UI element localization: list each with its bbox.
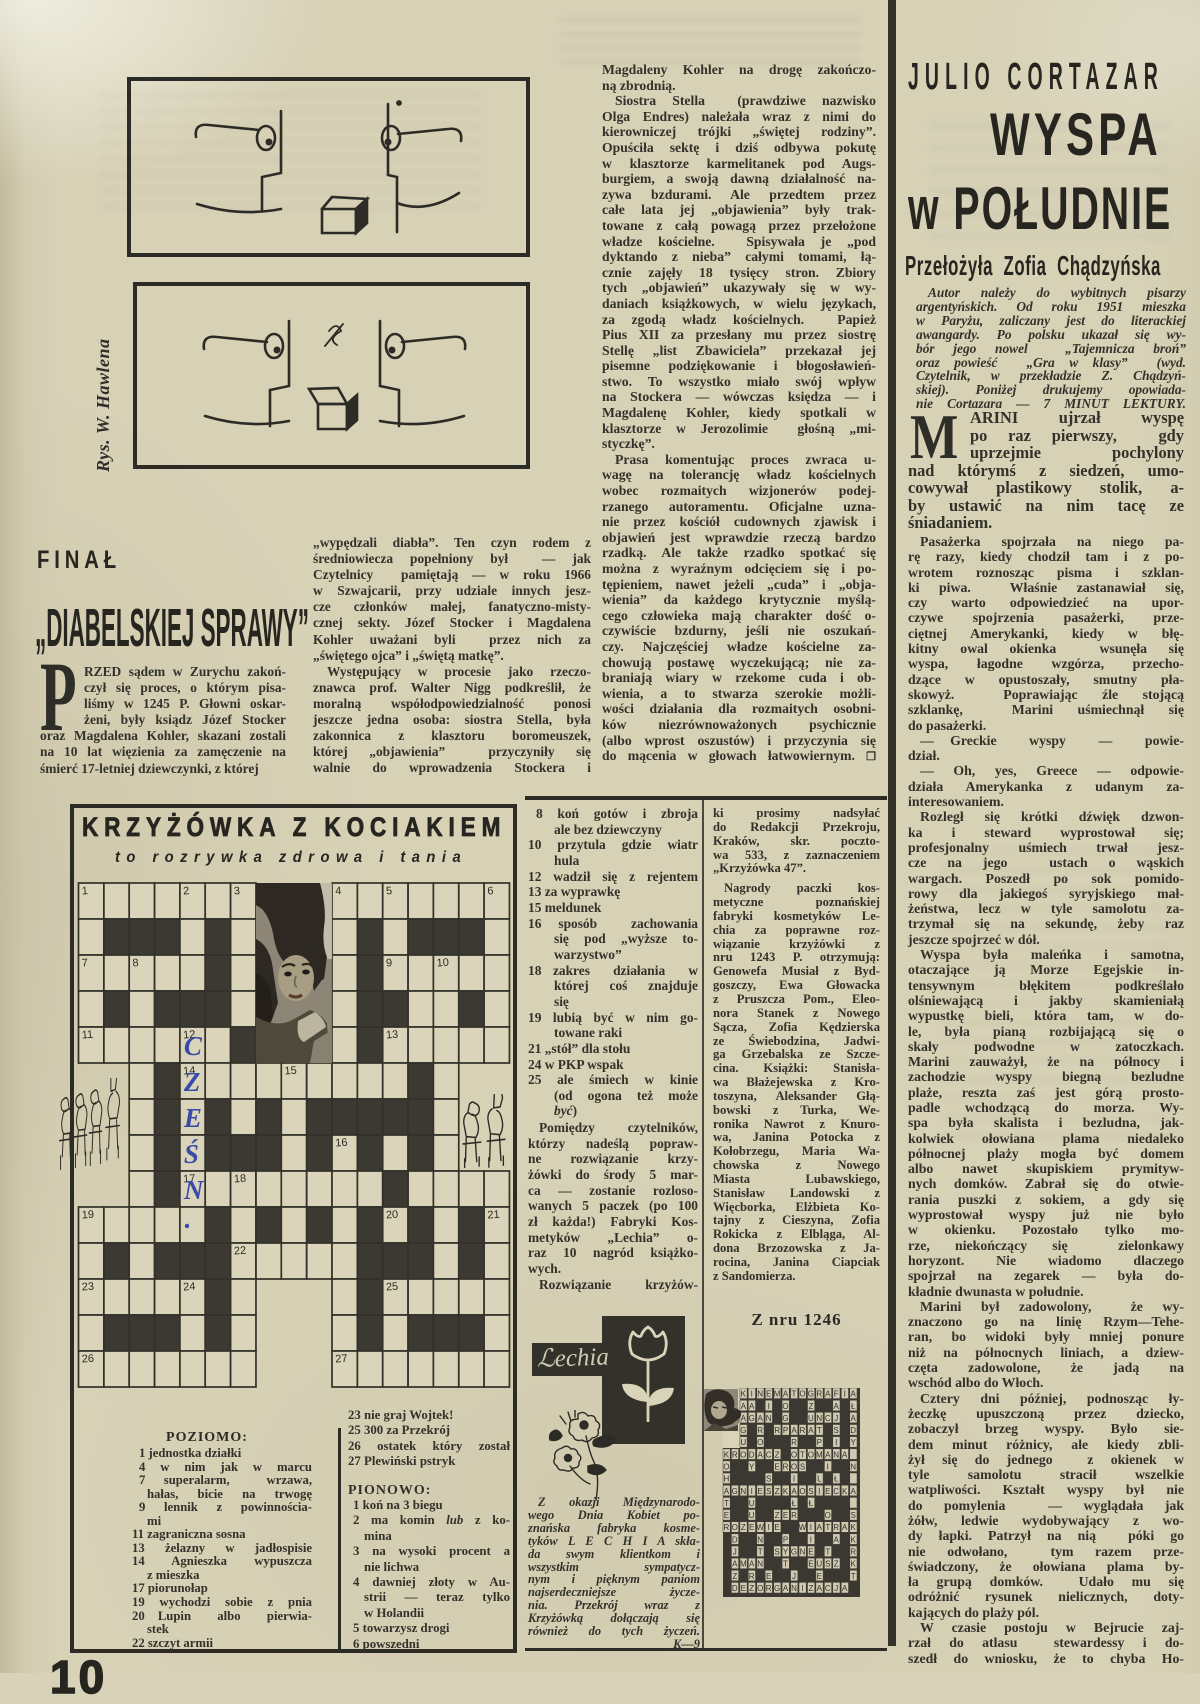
svg-text:G: G xyxy=(782,1414,788,1423)
svg-text:A: A xyxy=(808,1426,814,1435)
svg-text:A: A xyxy=(783,1584,789,1593)
svg-text:20: 20 xyxy=(386,1209,399,1222)
svg-text:I: I xyxy=(751,1390,753,1399)
svg-text:1: 1 xyxy=(81,885,88,897)
svg-text:Z: Z xyxy=(732,1572,737,1581)
svg-text:A: A xyxy=(732,1560,738,1569)
svg-text:A: A xyxy=(851,1390,857,1399)
svg-text:Ł: Ł xyxy=(851,1402,856,1411)
svg-text:Ł: Ł xyxy=(809,1499,814,1508)
svg-text:P: P xyxy=(783,1535,788,1544)
svg-text:T: T xyxy=(817,1426,822,1435)
svg-text:27: 27 xyxy=(335,1353,348,1366)
svg-text:K: K xyxy=(724,1450,730,1459)
svg-text:18: 18 xyxy=(233,1173,246,1186)
svg-text:N: N xyxy=(833,1450,839,1459)
svg-text:S: S xyxy=(808,1487,813,1496)
svg-text:W: W xyxy=(799,1523,807,1532)
svg-text:Y: Y xyxy=(783,1548,789,1557)
svg-text:ℒechia: ℒechia xyxy=(536,1343,609,1373)
svg-text:5: 5 xyxy=(386,885,393,897)
svg-text:N: N xyxy=(766,1414,772,1423)
svg-text:Y: Y xyxy=(749,1463,755,1472)
svg-text:A: A xyxy=(825,1390,831,1399)
svg-text:T: T xyxy=(758,1548,763,1557)
svg-text:L: L xyxy=(817,1475,822,1484)
svg-text:R: R xyxy=(749,1572,755,1581)
svg-text:E: E xyxy=(766,1390,771,1399)
svg-text:E: E xyxy=(724,1511,729,1520)
svg-text:4: 4 xyxy=(335,885,342,897)
svg-text:A: A xyxy=(851,1414,857,1423)
svg-text:25: 25 xyxy=(386,1281,399,1294)
svg-text:R: R xyxy=(791,1511,797,1520)
svg-text:C: C xyxy=(825,1584,831,1593)
svg-text:S: S xyxy=(774,1548,779,1557)
svg-text:O: O xyxy=(808,1450,814,1459)
svg-text:P: P xyxy=(817,1438,822,1447)
svg-text:3: 3 xyxy=(233,885,240,897)
svg-text:R: R xyxy=(850,1548,856,1557)
svg-text:I: I xyxy=(810,1523,812,1532)
svg-text:Z: Z xyxy=(834,1560,839,1569)
svg-text:E: E xyxy=(758,1487,763,1496)
svg-text:J: J xyxy=(733,1548,737,1557)
svg-text:19: 19 xyxy=(81,1209,94,1222)
svg-text:U: U xyxy=(749,1511,755,1520)
svg-text:D: D xyxy=(732,1584,738,1593)
svg-text:R: R xyxy=(774,1426,780,1435)
svg-text:R: R xyxy=(791,1438,797,1447)
svg-text:Ś: Ś xyxy=(184,1139,199,1169)
svg-text:I: I xyxy=(844,1390,846,1399)
svg-text:Z: Z xyxy=(183,1067,201,1097)
svg-text:J: J xyxy=(792,1572,796,1581)
svg-text:S: S xyxy=(766,1487,771,1496)
svg-text:E: E xyxy=(766,1572,771,1581)
svg-text:E: E xyxy=(808,1548,813,1557)
svg-text:T: T xyxy=(783,1560,788,1569)
svg-text:A: A xyxy=(817,1584,823,1593)
svg-text:E: E xyxy=(783,1511,788,1520)
svg-text:M: M xyxy=(740,1560,747,1569)
svg-text:G: G xyxy=(774,1584,780,1593)
svg-text:A: A xyxy=(842,1523,848,1532)
svg-text:O: O xyxy=(740,1450,746,1459)
svg-text:C: C xyxy=(825,1414,831,1423)
svg-text:E: E xyxy=(741,1584,746,1593)
svg-text:J: J xyxy=(834,1584,838,1593)
svg-text:U: U xyxy=(816,1560,822,1569)
svg-text:I: I xyxy=(835,1438,837,1447)
svg-text:Z: Z xyxy=(775,1450,780,1459)
svg-text:Ł: Ł xyxy=(792,1499,797,1508)
svg-text:S: S xyxy=(766,1475,771,1484)
svg-text:Z: Z xyxy=(808,1584,813,1593)
svg-text:E: E xyxy=(183,1103,202,1133)
svg-text:A: A xyxy=(758,1450,764,1459)
svg-text:A: A xyxy=(842,1584,848,1593)
svg-text:R: R xyxy=(783,1463,789,1472)
svg-text:T: T xyxy=(800,1450,805,1459)
svg-text:A: A xyxy=(791,1487,797,1496)
svg-text:26: 26 xyxy=(81,1353,94,1366)
svg-text:I: I xyxy=(768,1523,770,1532)
svg-text:K: K xyxy=(851,1523,857,1532)
svg-text:A: A xyxy=(834,1402,840,1411)
svg-text:T: T xyxy=(825,1523,830,1532)
svg-text:E: E xyxy=(808,1560,813,1569)
svg-text:G: G xyxy=(740,1426,746,1435)
svg-text:E: E xyxy=(817,1572,822,1581)
svg-text:23: 23 xyxy=(81,1281,94,1294)
svg-text:Y: Y xyxy=(851,1438,857,1447)
svg-text:11: 11 xyxy=(81,1029,93,1042)
svg-text:I: I xyxy=(768,1402,770,1411)
svg-text:G: G xyxy=(732,1487,738,1496)
svg-text:C: C xyxy=(833,1487,839,1496)
svg-text:R: R xyxy=(800,1426,806,1435)
svg-text:N: N xyxy=(757,1390,763,1399)
svg-text:O: O xyxy=(757,1584,763,1593)
svg-text:R: R xyxy=(732,1450,738,1459)
svg-text:O: O xyxy=(799,1487,805,1496)
svg-text:S: S xyxy=(834,1426,839,1435)
svg-text:N: N xyxy=(816,1414,822,1423)
svg-text:8: 8 xyxy=(132,957,139,969)
svg-text:H: H xyxy=(724,1475,730,1484)
svg-text:M: M xyxy=(774,1390,781,1399)
svg-text:C: C xyxy=(766,1450,772,1459)
svg-text:D: D xyxy=(850,1426,856,1435)
svg-text:E: E xyxy=(774,1463,779,1472)
svg-text:Z: Z xyxy=(775,1511,780,1520)
svg-text:U: U xyxy=(740,1438,746,1447)
svg-text:R: R xyxy=(816,1390,822,1399)
svg-text:D: D xyxy=(732,1535,738,1544)
svg-text:N: N xyxy=(740,1487,746,1496)
svg-text:I: I xyxy=(827,1463,829,1472)
svg-text:A: A xyxy=(834,1535,840,1544)
svg-text:E: E xyxy=(774,1523,779,1532)
svg-text:Z: Z xyxy=(808,1402,813,1411)
svg-text:S: S xyxy=(825,1560,830,1569)
svg-text:K: K xyxy=(741,1390,747,1399)
svg-text:R: R xyxy=(766,1584,772,1593)
svg-text:J: J xyxy=(834,1414,838,1423)
svg-text:N: N xyxy=(800,1548,806,1557)
svg-text:E: E xyxy=(749,1523,754,1532)
svg-text:F: F xyxy=(834,1390,839,1399)
svg-text:I: I xyxy=(818,1487,820,1496)
svg-text:O: O xyxy=(782,1402,788,1411)
svg-text:U: U xyxy=(749,1499,755,1508)
svg-text:G: G xyxy=(791,1548,797,1557)
svg-text:Z: Z xyxy=(741,1523,746,1532)
svg-text:22: 22 xyxy=(233,1245,246,1258)
svg-text:13: 13 xyxy=(386,1029,399,1042)
svg-text:I: I xyxy=(810,1535,812,1544)
svg-text:R: R xyxy=(833,1523,839,1532)
svg-text:P: P xyxy=(783,1426,788,1435)
svg-text:Ł: Ł xyxy=(834,1475,839,1484)
svg-text:T: T xyxy=(724,1499,729,1508)
svg-text:O: O xyxy=(757,1438,763,1447)
svg-text:K: K xyxy=(851,1535,857,1544)
svg-text:I: I xyxy=(801,1584,803,1593)
svg-text:I: I xyxy=(751,1487,753,1496)
svg-text:K: K xyxy=(851,1560,857,1569)
svg-text:K: K xyxy=(783,1487,789,1496)
svg-text:I: I xyxy=(793,1475,795,1484)
svg-text:2: 2 xyxy=(183,885,190,897)
svg-text:O: O xyxy=(732,1523,738,1532)
svg-text:7: 7 xyxy=(81,957,88,969)
svg-text:O: O xyxy=(791,1450,797,1459)
svg-text:G: G xyxy=(749,1414,755,1423)
svg-text:T: T xyxy=(792,1390,797,1399)
svg-text:D: D xyxy=(749,1450,755,1459)
svg-text:R: R xyxy=(757,1426,763,1435)
svg-text:K: K xyxy=(842,1487,848,1496)
svg-text:9: 9 xyxy=(386,957,393,969)
svg-text:10: 10 xyxy=(436,957,449,970)
svg-text:N: N xyxy=(791,1584,797,1593)
svg-text:A: A xyxy=(749,1560,755,1569)
svg-text:A: A xyxy=(758,1414,764,1423)
svg-text:A: A xyxy=(749,1402,755,1411)
svg-text:E: E xyxy=(825,1487,830,1496)
svg-text:Z: Z xyxy=(775,1487,780,1496)
svg-text:6: 6 xyxy=(487,885,494,897)
svg-text:N: N xyxy=(757,1560,763,1569)
svg-text:Z: Z xyxy=(749,1584,754,1593)
svg-text:O: O xyxy=(825,1511,831,1520)
svg-text:A: A xyxy=(791,1426,797,1435)
svg-text:C: C xyxy=(184,1031,203,1061)
svg-text:A: A xyxy=(741,1402,747,1411)
svg-text:N: N xyxy=(757,1535,763,1544)
svg-text:W: W xyxy=(756,1523,764,1532)
svg-text:S: S xyxy=(800,1463,805,1472)
svg-text:16: 16 xyxy=(335,1137,348,1150)
svg-text:A: A xyxy=(817,1523,823,1532)
svg-text:A: A xyxy=(842,1450,848,1459)
svg-text:O: O xyxy=(799,1390,805,1399)
svg-text:A: A xyxy=(851,1487,857,1496)
svg-text:T: T xyxy=(825,1548,830,1557)
svg-text:O: O xyxy=(723,1463,729,1472)
svg-text:A: A xyxy=(783,1390,789,1399)
svg-text:N: N xyxy=(850,1463,856,1472)
svg-text:R: R xyxy=(724,1523,730,1532)
svg-text:M: M xyxy=(816,1450,823,1459)
svg-text:A: A xyxy=(825,1450,831,1459)
svg-text:N: N xyxy=(183,1175,205,1205)
svg-text:A: A xyxy=(724,1487,730,1496)
svg-text:21: 21 xyxy=(487,1209,500,1222)
svg-text:24: 24 xyxy=(183,1281,196,1294)
svg-text:O: O xyxy=(791,1463,797,1472)
svg-text:U: U xyxy=(808,1414,814,1423)
svg-text:S: S xyxy=(851,1511,856,1520)
svg-text:T: T xyxy=(851,1572,856,1581)
svg-text:15: 15 xyxy=(284,1065,297,1078)
svg-text:G: G xyxy=(808,1390,814,1399)
svg-text:A: A xyxy=(741,1414,747,1423)
